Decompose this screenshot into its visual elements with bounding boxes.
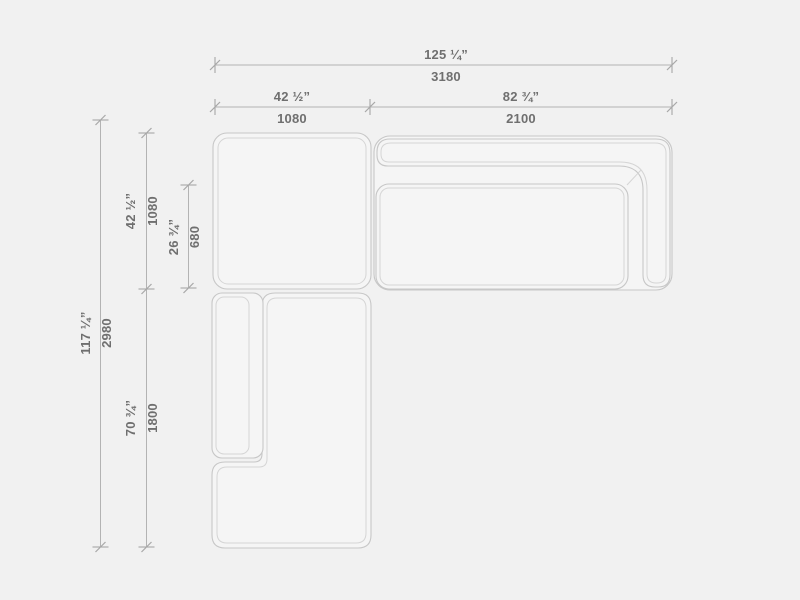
dim-left-width-inches: 42 ½”	[274, 89, 310, 104]
sofa-seat-cushion	[376, 184, 628, 289]
dim-total-depth-mm: 2980	[99, 318, 114, 348]
dim-right-width-inches: 82 ¾”	[503, 89, 539, 104]
drawing-svg: 125 ¼” 3180 42 ½” 1080 82 ¾” 2100 117 ¼”…	[0, 0, 800, 600]
dimension-total-depth: 117 ¼” 2980	[78, 115, 114, 552]
dim-total-width-inches: 125 ¼”	[424, 47, 468, 62]
dim-top-depth-inches: 42 ½”	[123, 193, 138, 229]
ottoman-outline	[213, 133, 371, 289]
dimension-module-widths: 42 ½” 1080 82 ¾” 2100	[210, 89, 677, 126]
sofa-dimension-drawing: 125 ¼” 3180 42 ½” 1080 82 ¾” 2100 117 ¼”…	[0, 0, 800, 600]
dimension-module-depths: 42 ½” 1080 70 ¾” 1800	[123, 128, 160, 552]
dim-chaise-length-mm: 1800	[145, 403, 160, 433]
dim-total-width-mm: 3180	[431, 69, 461, 84]
chaise-armrest	[212, 293, 263, 458]
dim-top-depth-mm: 1080	[145, 196, 160, 226]
dim-chaise-length-inches: 70 ¾”	[123, 400, 138, 436]
dim-seat-depth-mm: 680	[187, 226, 202, 248]
dim-right-width-mm: 2100	[506, 111, 536, 126]
sofa-right-module	[374, 136, 672, 290]
dim-left-width-mm: 1080	[277, 111, 307, 126]
dimension-seat-depth: 26 ¾” 680	[166, 180, 202, 293]
chaise-module	[212, 293, 371, 548]
dimension-total-width: 125 ¼” 3180	[210, 47, 677, 84]
dim-total-depth-inches: 117 ¼”	[78, 311, 93, 354]
dim-seat-depth-inches: 26 ¾”	[166, 219, 181, 255]
ottoman-module	[213, 133, 371, 289]
